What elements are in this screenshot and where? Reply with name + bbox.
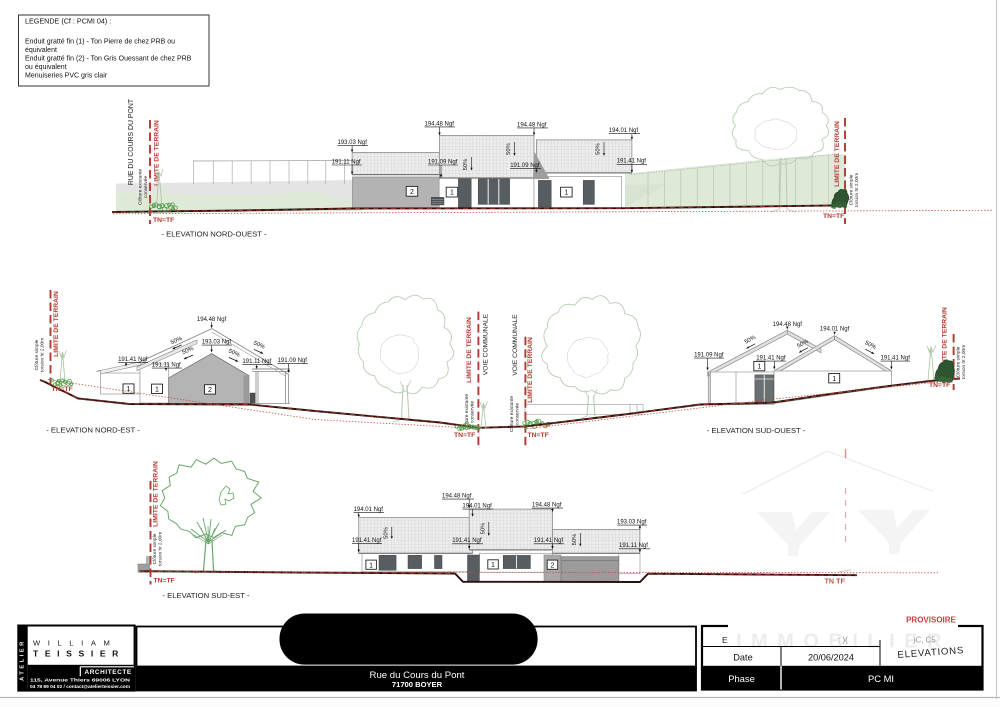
svg-text:191.11 Ngf: 191.11 Ngf — [242, 359, 271, 365]
svg-text:conservée: conservée — [515, 403, 521, 425]
svg-text:50%: 50% — [572, 533, 578, 546]
svg-text:191.41 Ngf: 191.41 Ngf — [118, 357, 148, 363]
svg-text:- ELEVATION NORD-EST -: - ELEVATION NORD-EST - — [46, 426, 140, 435]
svg-text:TN=TF: TN=TF — [454, 432, 475, 439]
svg-text:191.11 Ngf: 191.11 Ngf — [152, 363, 181, 369]
svg-text:torsion ht 2,00m: torsion ht 2,00m — [961, 345, 967, 379]
svg-text:VOIE COMMUNALE: VOIE COMMUNALE — [512, 314, 519, 376]
svg-text:conservée: conservée — [143, 176, 149, 198]
svg-text:Clôture simple: Clôture simple — [34, 339, 40, 370]
svg-text:Menuiseries PVC gris clair: Menuiseries PVC gris clair — [25, 73, 108, 80]
svg-text:TN=TF: TN=TF — [52, 386, 73, 393]
svg-text:50%: 50% — [596, 142, 602, 155]
svg-text:193.03 Ngf: 193.03 Ngf — [338, 140, 368, 146]
svg-text:)C, C5: )C, C5 — [913, 636, 936, 645]
svg-text:TN=TF: TN=TF — [154, 578, 175, 585]
svg-text:194.48 Ngf: 194.48 Ngf — [532, 503, 562, 509]
svg-text:191.11 Ngf: 191.11 Ngf — [619, 543, 648, 549]
svg-text:191.09 Ngf: 191.09 Ngf — [278, 358, 308, 364]
svg-text:équivalent: équivalent — [25, 47, 57, 54]
svg-text:Clôture simple: Clôture simple — [152, 533, 158, 564]
svg-text:TN TF: TN TF — [825, 577, 846, 586]
svg-text:2: 2 — [410, 189, 414, 196]
svg-text:1: 1 — [832, 376, 836, 383]
svg-text:Clôture existante: Clôture existante — [138, 169, 144, 205]
svg-text:WILLIAM: WILLIAM — [33, 639, 117, 648]
svg-text:2: 2 — [551, 562, 555, 569]
svg-text:ATELIER: ATELIER — [20, 639, 26, 681]
svg-text:TN=TF: TN=TF — [929, 382, 950, 389]
svg-text:Clôture existante: Clôture existante — [509, 396, 515, 432]
svg-text:191.41 Ngf: 191.41 Ngf — [352, 538, 382, 544]
svg-text:LIMITE DE TERRAIN: LIMITE DE TERRAIN — [466, 317, 473, 383]
svg-text:50%: 50% — [463, 158, 469, 171]
svg-text:194.01 Ngf: 194.01 Ngf — [354, 507, 384, 513]
svg-text:115, Avenue Thiers 69006: 115, Avenue Thiers 69006 LYON — [30, 678, 130, 683]
svg-text:Date: Date — [733, 653, 752, 663]
svg-text:191.11 Ngf: 191.11 Ngf — [332, 159, 361, 165]
svg-text:1: 1 — [757, 364, 761, 371]
svg-text:torsion ht 2,00m: torsion ht 2,00m — [854, 173, 860, 207]
svg-text:- ELEVATION NORD-OUEST -: - ELEVATION NORD-OUEST - — [161, 230, 267, 239]
svg-text:RUE DU COURS DU PONT: RUE DU COURS DU PONT — [128, 98, 135, 185]
svg-text:194.48 Ngf: 194.48 Ngf — [425, 121, 455, 127]
svg-text:20/06/2024: 20/06/2024 — [808, 653, 854, 663]
svg-text:191.41 Ngf: 191.41 Ngf — [756, 356, 786, 362]
svg-text:TN=TF: TN=TF — [823, 213, 844, 220]
svg-text:193.03 Ngf: 193.03 Ngf — [617, 520, 647, 526]
svg-text:50%: 50% — [384, 526, 390, 539]
svg-text:- ELEVATION SUD-OUEST -: - ELEVATION SUD-OUEST - — [707, 426, 806, 435]
svg-text:191.41 Ngf: 191.41 Ngf — [617, 159, 647, 165]
svg-text:Clôture simple: Clôture simple — [956, 346, 962, 377]
svg-text:191.09 Ngf: 191.09 Ngf — [428, 159, 458, 165]
svg-text:ou équivalent: ou équivalent — [25, 64, 67, 71]
svg-text:LIMITE DE TERRAIN: LIMITE DE TERRAIN — [53, 291, 60, 357]
svg-text:Phase: Phase — [728, 673, 755, 684]
svg-text:PC MI: PC MI — [868, 673, 894, 684]
svg-text:TN=TF: TN=TF — [153, 217, 174, 224]
svg-text:71700 BOYER: 71700 BOYER — [392, 680, 443, 689]
svg-text:191.41 Ngf: 191.41 Ngf — [534, 538, 564, 544]
svg-text:torsion ht 2,00m: torsion ht 2,00m — [40, 338, 46, 372]
svg-text:194.48 Ngf: 194.48 Ngf — [197, 317, 227, 323]
svg-text:Enduit gratté fin (2) - Ton Gr: Enduit gratté fin (2) - Ton Gris Ouessan… — [25, 56, 192, 63]
svg-text:2: 2 — [208, 387, 212, 394]
svg-text:PROVISOIRE: PROVISOIRE — [906, 615, 956, 624]
svg-text:191.09 Ngf: 191.09 Ngf — [694, 353, 724, 359]
svg-text:TEISSIER: TEISSIER — [33, 649, 125, 659]
svg-text:E: E — [722, 635, 728, 645]
svg-text:Enduit gratté fin (1) - Ton Pi: Enduit gratté fin (1) - Ton Pierre de ch… — [25, 39, 175, 46]
svg-text:LIMITE DE TERRAIN: LIMITE DE TERRAIN — [153, 461, 160, 527]
svg-text:194.01 Ngf: 194.01 Ngf — [820, 326, 850, 332]
svg-text:torsion ht 2,00m: torsion ht 2,00m — [158, 532, 164, 566]
svg-text:LIMITE DE TERRAIN: LIMITE DE TERRAIN — [834, 121, 841, 187]
svg-text:LIMITE DE TERRAIN: LIMITE DE TERRAIN — [527, 337, 534, 403]
svg-text:1: 1 — [369, 562, 373, 569]
svg-text:: )(: : )( — [838, 636, 848, 645]
svg-text:1: 1 — [564, 190, 568, 197]
svg-text:194.01 Ngf: 194.01 Ngf — [462, 504, 492, 510]
svg-text:VOIE COMMUNALE: VOIE COMMUNALE — [483, 313, 490, 375]
svg-text:194.01 Ngf: 194.01 Ngf — [609, 128, 639, 134]
svg-text:50%: 50% — [506, 142, 512, 155]
svg-text:194.48 Ngf: 194.48 Ngf — [442, 494, 472, 500]
svg-text:193.03 Ngf: 193.03 Ngf — [202, 340, 232, 346]
svg-text:1: 1 — [450, 190, 454, 197]
svg-text:191.09 Ngf: 191.09 Ngf — [510, 163, 540, 169]
svg-text:- ELEVATION SUD-EST -: - ELEVATION SUD-EST - — [162, 591, 250, 600]
svg-text:1: 1 — [491, 562, 495, 569]
svg-text:194.48 Ngf: 194.48 Ngf — [517, 122, 547, 128]
svg-text:191.41 Ngf: 191.41 Ngf — [881, 356, 911, 362]
svg-text:1: 1 — [155, 386, 159, 393]
svg-text:LEGENDE (Cf : PCMI 04) :: LEGENDE (Cf : PCMI 04) : — [25, 17, 111, 26]
svg-text:conservée: conservée — [470, 401, 476, 423]
svg-text:1: 1 — [127, 386, 131, 393]
svg-text:ARCHITECTE: ARCHITECTE — [85, 669, 132, 676]
svg-text:04 78 89 04 02 / contact@ateli: 04 78 89 04 02 / contact@atelierteissier… — [30, 684, 130, 689]
svg-text:Clôture simple: Clôture simple — [849, 174, 855, 205]
svg-text:191.41 Ngf: 191.41 Ngf — [452, 538, 482, 544]
svg-text:TN=TF: TN=TF — [528, 432, 549, 439]
svg-text:50%: 50% — [481, 522, 487, 535]
